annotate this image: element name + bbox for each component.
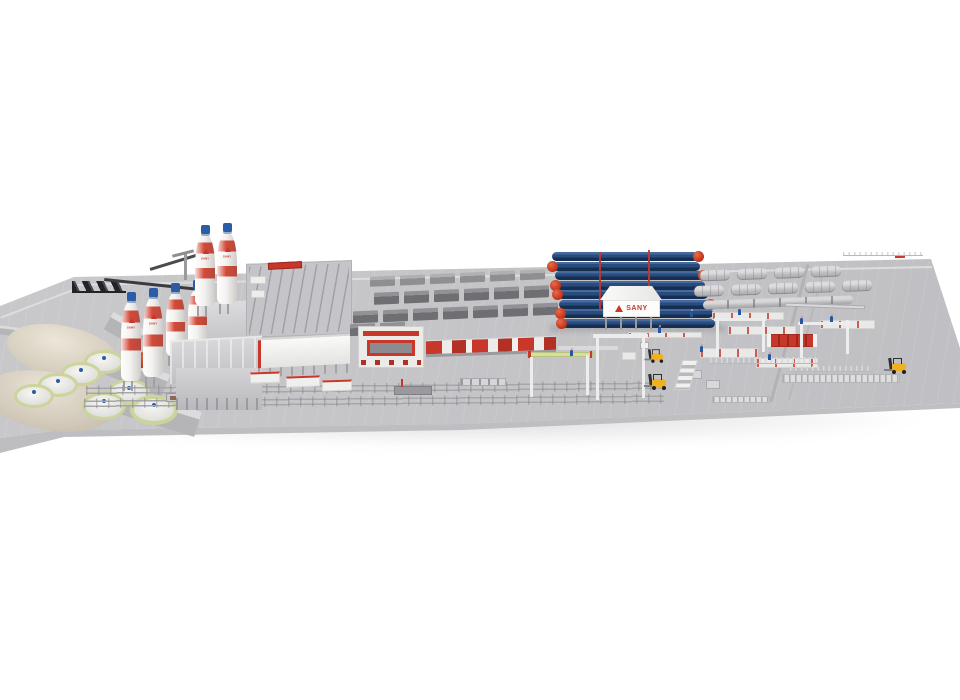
slurry-tank xyxy=(14,384,54,408)
worker xyxy=(800,318,803,324)
platform-cabin xyxy=(250,276,266,284)
mold xyxy=(520,269,545,280)
pile-bundle xyxy=(805,281,835,293)
autoclave-door xyxy=(693,251,704,262)
aggregate-hoppers xyxy=(72,281,126,293)
mold xyxy=(430,273,455,284)
transfer-cart xyxy=(394,386,432,395)
mold-table xyxy=(286,375,320,387)
autoclave xyxy=(553,262,700,271)
autoclave xyxy=(555,271,703,280)
gantry-post xyxy=(846,320,849,354)
platform-cabin xyxy=(251,290,265,298)
mold-table xyxy=(322,379,352,391)
worker xyxy=(690,311,693,317)
forklift-fork xyxy=(884,369,892,371)
machine-window xyxy=(367,340,415,356)
forklift xyxy=(888,358,914,376)
factory-render: SANY SANY SANY SANY xyxy=(0,0,960,700)
gantry-crane-beam xyxy=(798,322,850,325)
forklift-wheel xyxy=(660,359,663,362)
mold xyxy=(473,305,498,318)
gantry-post xyxy=(800,324,803,358)
gantry-crane-beam xyxy=(593,334,648,338)
cement-silo: SANY xyxy=(217,232,237,304)
pallet-stack xyxy=(706,380,720,389)
cement-silo: SANY xyxy=(143,297,163,377)
building-front: SANY xyxy=(603,300,660,317)
gantry-post xyxy=(642,334,645,398)
mold-circulation-platform xyxy=(246,260,352,338)
gantry-crane-beam xyxy=(714,318,766,321)
mold xyxy=(460,272,485,283)
silo-brand-label: SANY xyxy=(200,257,210,260)
forklift xyxy=(648,374,672,392)
pile-forming-machine xyxy=(358,326,424,368)
sany-control-building: SANY xyxy=(600,286,664,332)
perimeter-rack xyxy=(843,252,923,256)
roller-conveyor xyxy=(558,346,618,350)
sany-logo-icon xyxy=(203,249,209,254)
worker xyxy=(830,316,833,322)
autoclave-door xyxy=(552,289,563,300)
pile-bundle xyxy=(842,280,872,292)
pile-bundle xyxy=(811,266,841,278)
forklift xyxy=(648,349,668,363)
mold xyxy=(353,310,378,323)
mold xyxy=(503,304,528,317)
machine-red-bar xyxy=(363,331,419,336)
mold xyxy=(370,276,395,287)
mold xyxy=(413,308,438,321)
silo-brand-label: SANY xyxy=(222,255,232,258)
mold xyxy=(400,274,425,285)
chain-conveyor xyxy=(712,396,770,403)
forklift-cage xyxy=(652,349,660,354)
cement-silo: SANY xyxy=(121,301,141,381)
forklift-fork xyxy=(644,359,651,361)
gantry-post xyxy=(596,336,599,400)
sany-logo-icon xyxy=(129,318,135,323)
cement-silo: SANY xyxy=(195,234,215,306)
crane-mast xyxy=(184,253,187,280)
worker xyxy=(570,350,573,356)
pile-bundle xyxy=(731,284,761,296)
worker xyxy=(700,346,703,352)
autoclave xyxy=(552,252,698,261)
work-table xyxy=(622,352,636,360)
sany-logo-icon xyxy=(615,305,623,312)
forklift-cage xyxy=(653,374,662,380)
autoclave-door xyxy=(556,318,567,329)
mold-table xyxy=(250,371,280,383)
pile-bundle xyxy=(774,267,804,279)
mixing-building xyxy=(258,334,350,369)
forklift-wheel xyxy=(662,386,666,390)
transfer-cart xyxy=(460,378,506,386)
building-brand-label: SANY xyxy=(626,305,647,312)
mold xyxy=(374,292,399,305)
mold xyxy=(494,286,519,299)
sany-logo-icon xyxy=(151,314,157,319)
silo-brand-label: SANY xyxy=(126,327,136,330)
forklift-wheel xyxy=(652,386,656,390)
pile-bundle xyxy=(737,268,767,280)
mold xyxy=(383,309,408,322)
mold xyxy=(524,285,549,298)
mold xyxy=(490,270,515,281)
pile-bundle xyxy=(768,282,798,294)
building-roof xyxy=(600,286,662,300)
gantry-post xyxy=(530,357,533,397)
silo-brand-label: SANY xyxy=(148,323,158,326)
worker xyxy=(658,327,661,333)
building-legs xyxy=(605,317,659,329)
worker xyxy=(768,354,771,360)
forklift-wheel xyxy=(892,370,896,374)
mold xyxy=(443,306,468,319)
tensioning-machine xyxy=(768,334,816,347)
rack-conveyor xyxy=(710,357,818,364)
forklift-wheel xyxy=(902,370,906,374)
mold xyxy=(464,288,489,301)
forklift-fork xyxy=(644,385,652,387)
mold xyxy=(404,290,429,303)
machine-feet xyxy=(361,360,421,365)
sany-logo-icon xyxy=(225,247,231,252)
gantry-post xyxy=(716,320,719,356)
mold xyxy=(434,289,459,302)
forklift-wheel xyxy=(651,359,654,362)
pile-bundle xyxy=(694,285,724,297)
autoclave-door xyxy=(547,261,558,272)
gantry-post xyxy=(762,316,765,352)
forklift-cage xyxy=(893,358,902,364)
pile-bundle xyxy=(700,269,730,281)
chain-conveyor xyxy=(782,374,900,383)
gantry-post xyxy=(586,355,589,395)
gantry-crane-beam xyxy=(527,352,593,357)
worker xyxy=(738,309,741,315)
rack-conveyor xyxy=(790,366,870,372)
